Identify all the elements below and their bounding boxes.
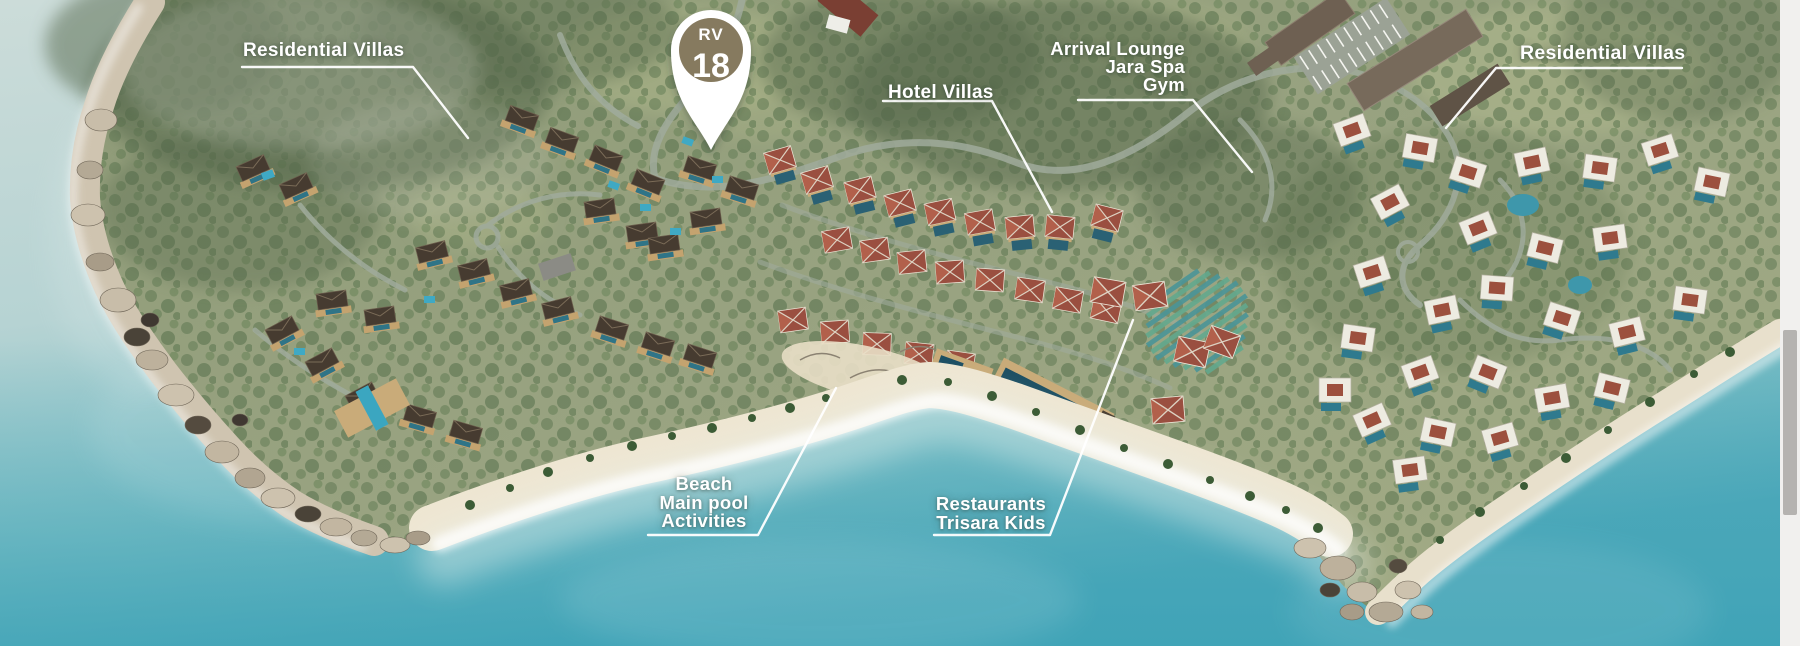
- screen: RV 18 Residential Villas Hotel Villas Ar…: [0, 0, 1800, 646]
- callout-line: Residential Villas: [1520, 42, 1685, 65]
- callout-line: Residential Villas: [243, 40, 404, 62]
- callout-residential-villas-east: Residential Villas: [1520, 42, 1685, 65]
- callout-beach-area: Beach Main pool Activities: [645, 475, 763, 531]
- vertical-scrollbar-thumb[interactable]: [1783, 330, 1797, 515]
- pin-label: RV: [698, 25, 723, 44]
- callout-line: Activities: [645, 512, 763, 531]
- callout-line: Trisara Kids: [925, 514, 1057, 533]
- callout-residential-villas-west: Residential Villas: [243, 40, 404, 62]
- callout-line: Gym: [1035, 76, 1185, 94]
- callout-arrival-lounge: Arrival Lounge Jara Spa Gym: [1035, 40, 1185, 95]
- callout-line: Restaurants: [925, 495, 1057, 514]
- resort-map-image[interactable]: RV 18 Residential Villas Hotel Villas Ar…: [0, 0, 1780, 646]
- pin-number: 18: [692, 47, 730, 85]
- callout-line: Beach: [645, 475, 763, 494]
- callout-restaurants: Restaurants Trisara Kids: [925, 495, 1057, 532]
- callout-hotel-villas: Hotel Villas: [888, 82, 994, 104]
- vertical-scrollbar-track[interactable]: [1780, 0, 1800, 646]
- callout-line: Hotel Villas: [888, 82, 994, 104]
